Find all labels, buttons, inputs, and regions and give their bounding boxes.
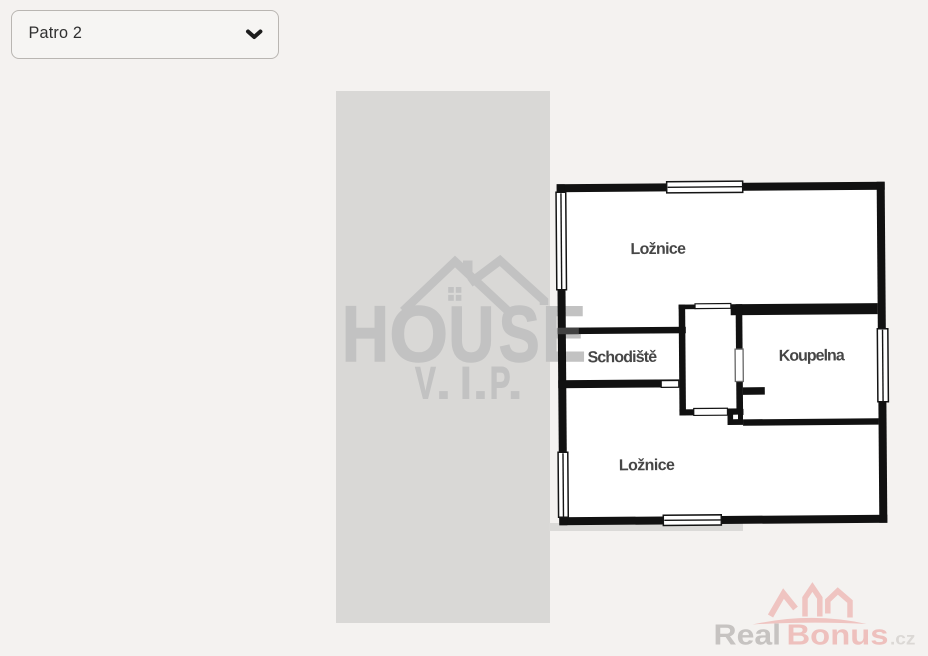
- svg-text:.: .: [473, 359, 487, 409]
- svg-text:.cz: .cz: [890, 629, 916, 649]
- svg-text:Bonus: Bonus: [787, 620, 889, 652]
- svg-text:Ložnice: Ložnice: [619, 457, 675, 474]
- svg-text:Koupelna: Koupelna: [779, 347, 845, 365]
- svg-text:I: I: [460, 358, 471, 409]
- svg-text:Ložnice: Ložnice: [630, 241, 686, 258]
- svg-text:.: .: [436, 359, 450, 409]
- svg-text:V: V: [415, 359, 436, 409]
- svg-text:Schodiště: Schodiště: [588, 349, 658, 367]
- svg-text:.: .: [508, 359, 522, 409]
- svg-text:Real: Real: [714, 620, 782, 652]
- svg-text:H: H: [342, 291, 389, 378]
